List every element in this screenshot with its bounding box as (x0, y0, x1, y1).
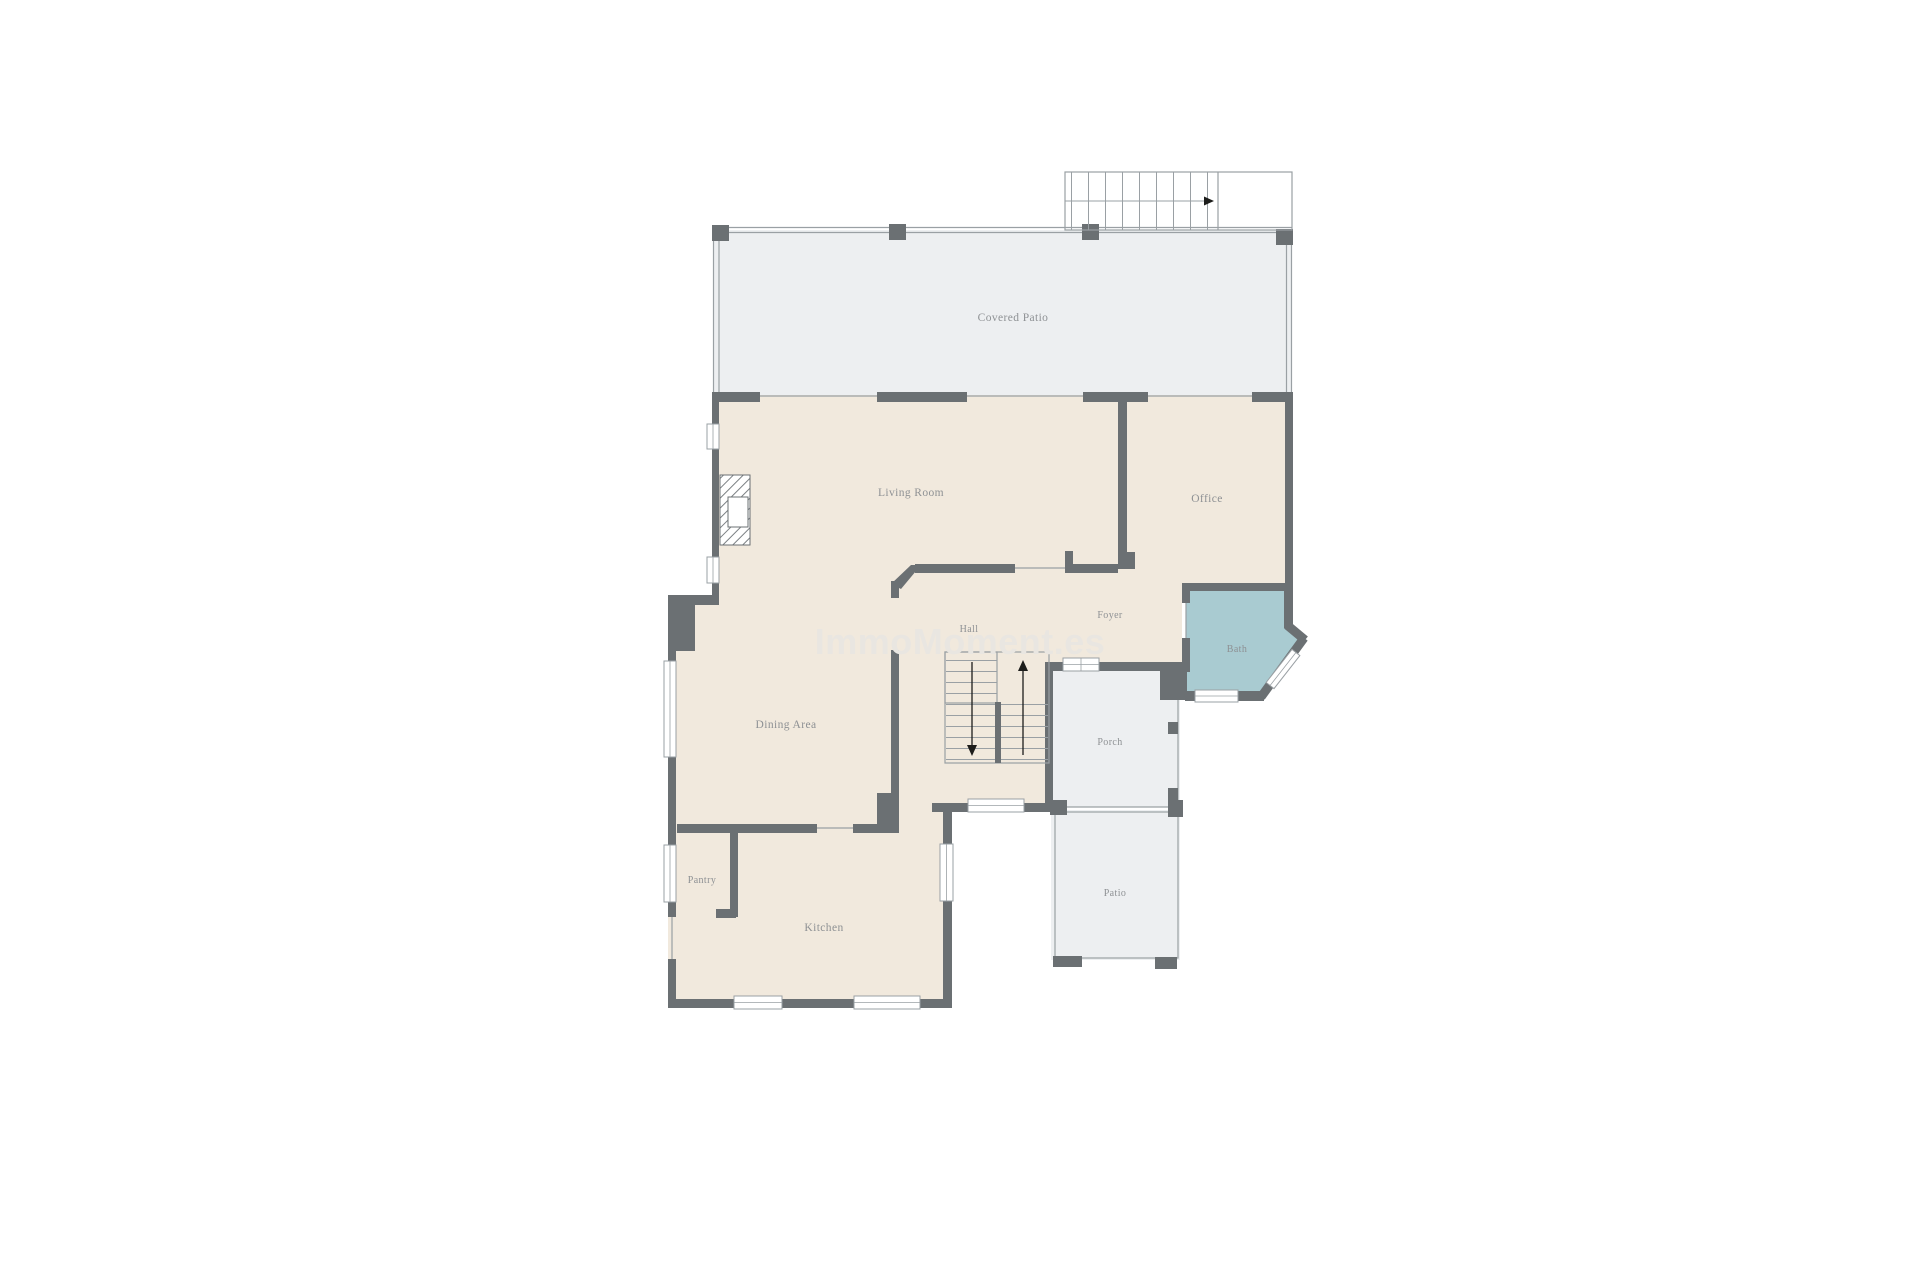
pillar (712, 225, 729, 241)
room-label-foyer: Foyer (1097, 610, 1123, 621)
room-label-porch: Porch (1097, 737, 1122, 748)
room-label-bath: Bath (1227, 644, 1248, 655)
pillar (1276, 229, 1293, 245)
room-label-covered-patio: Covered Patio (978, 312, 1049, 324)
external-staircase (1065, 172, 1292, 230)
room-label-patio: Patio (1104, 888, 1127, 899)
patio-area (1051, 810, 1180, 960)
room-label-kitchen: Kitchen (804, 922, 843, 934)
room-label-living-room: Living Room (878, 487, 944, 499)
floor-fills (668, 230, 1307, 1008)
room-label-office: Office (1191, 493, 1223, 505)
fireplace (720, 475, 750, 545)
pillar (889, 224, 906, 240)
floor-plan: ImmoMoment.es Covered Patio Living Room … (0, 0, 1920, 1280)
room-label-dining-area: Dining Area (756, 719, 817, 731)
floor-plan-page: ImmoMoment.es Covered Patio Living Room … (0, 0, 1920, 1280)
room-label-pantry: Pantry (688, 875, 717, 886)
room-label-hall: Hall (960, 624, 979, 635)
